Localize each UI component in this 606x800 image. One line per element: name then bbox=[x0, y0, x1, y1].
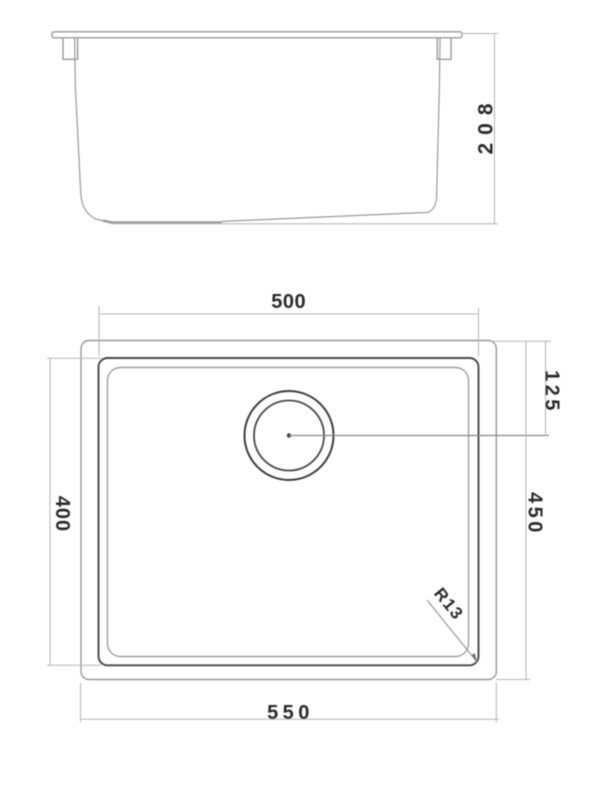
svg-text:450: 450 bbox=[524, 492, 546, 536]
svg-text:500: 500 bbox=[271, 291, 306, 313]
svg-text:400: 400 bbox=[51, 496, 73, 532]
svg-text:125: 125 bbox=[541, 370, 563, 414]
svg-text:208: 208 bbox=[475, 95, 498, 154]
svg-text:550: 550 bbox=[267, 702, 314, 724]
svg-text:R13: R13 bbox=[430, 584, 467, 624]
